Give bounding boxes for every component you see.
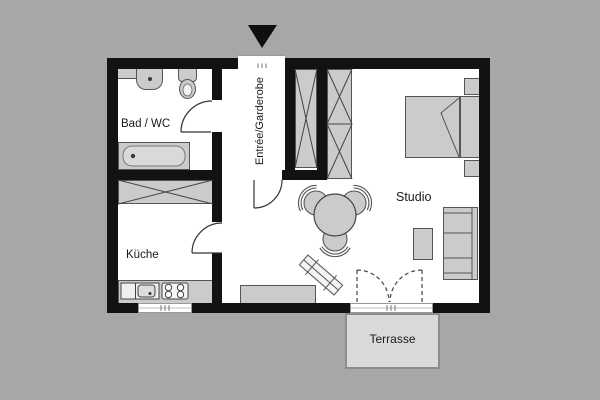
wall-top-left (107, 58, 238, 69)
kitchen-cabinet (118, 180, 213, 204)
entrance-arrow-icon (248, 25, 277, 48)
nightstand-bottom (464, 160, 480, 177)
terrace-door-threshold (350, 303, 433, 313)
kitchen-counter (118, 280, 213, 303)
wardrobe-left (295, 69, 317, 168)
wash-basin (136, 69, 163, 90)
wall-top-right (285, 58, 490, 69)
wall-wardrobe-divider (317, 69, 327, 180)
floor-plan: Bad / WC Küche Entrée/Garderobe Studio T… (0, 0, 600, 400)
toilet-tank (178, 69, 197, 82)
wall-right (479, 58, 490, 313)
nightstand-top (464, 78, 480, 95)
wall-kitchen-right-lower (212, 253, 222, 303)
kitchen-label: Küche (126, 250, 159, 262)
studio-label: Studio (396, 191, 431, 204)
terrace-label: Terrasse (345, 333, 440, 345)
entry-label: Entrée/Garderobe (255, 46, 269, 196)
bed-mattress (405, 96, 460, 158)
bed-headboard (460, 96, 480, 158)
coffee-table (413, 228, 433, 260)
wardrobe-right (327, 69, 352, 179)
kitchen-window (138, 303, 192, 313)
wall-bath-bottom (118, 170, 222, 180)
bathroom-label: Bad / WC (121, 119, 170, 131)
sideboard (240, 285, 316, 303)
wall-entry-right (285, 69, 295, 180)
wall-bath-right-upper (212, 69, 222, 100)
sofa (443, 207, 478, 280)
wall-left (107, 58, 118, 313)
bathtub (118, 142, 190, 170)
